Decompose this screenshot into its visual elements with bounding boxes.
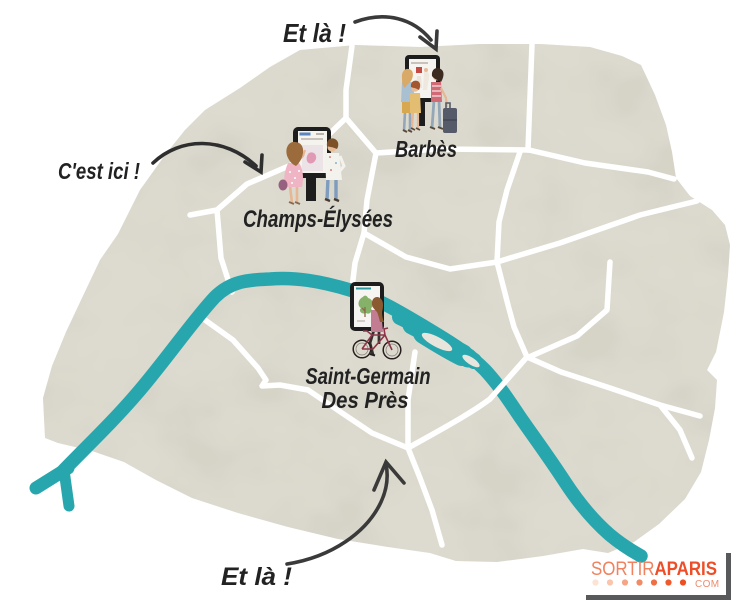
svg-text:Et là !: Et là ! bbox=[221, 563, 292, 591]
svg-text:COM: COM bbox=[695, 579, 720, 590]
svg-text:C'est ici !: C'est ici ! bbox=[58, 158, 140, 184]
svg-text:Et là !: Et là ! bbox=[283, 18, 346, 48]
svg-text:SORTIRAPARIS: SORTIRAPARIS bbox=[591, 558, 717, 580]
svg-text:Des Près: Des Près bbox=[322, 387, 409, 413]
svg-text:Saint-Germain: Saint-Germain bbox=[306, 363, 431, 389]
svg-text:Barbès: Barbès bbox=[395, 136, 457, 162]
svg-text:Champs-Élysées: Champs-Élysées bbox=[243, 205, 393, 233]
